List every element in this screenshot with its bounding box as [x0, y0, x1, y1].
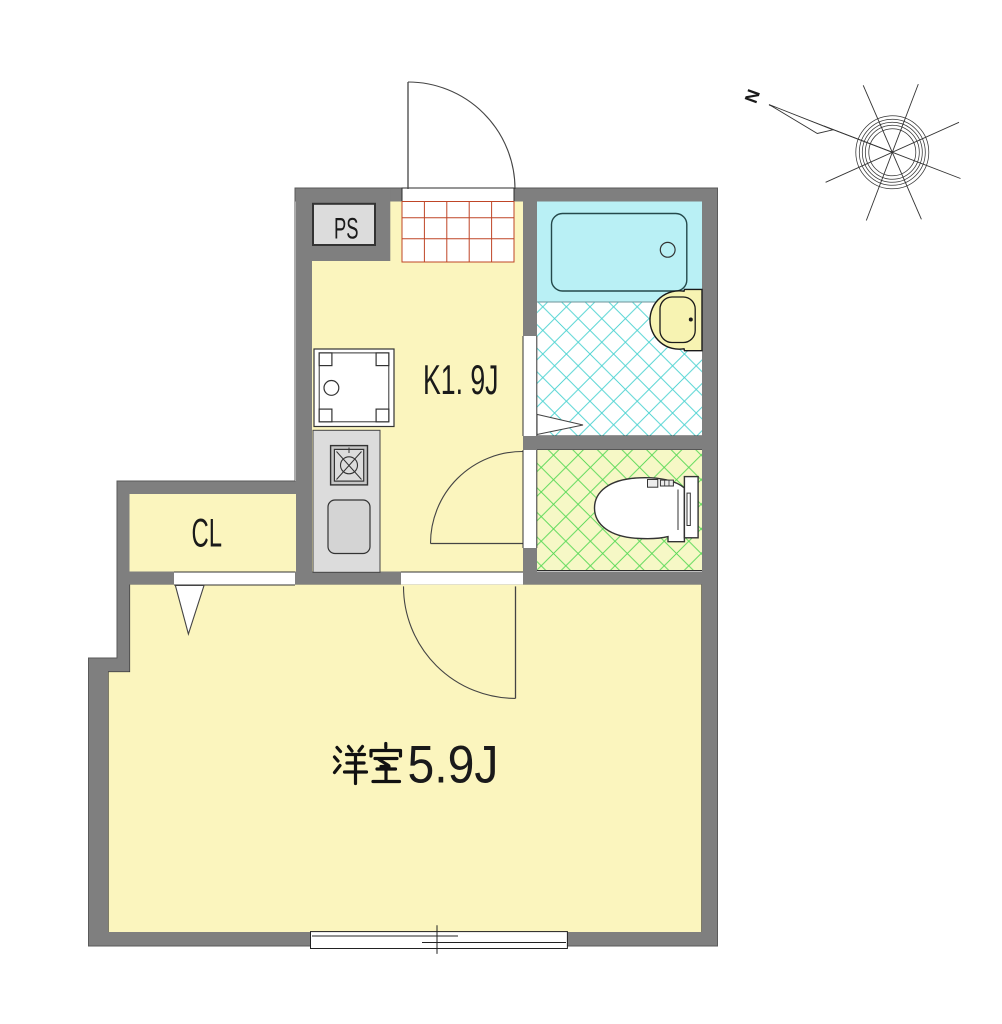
svg-text:5.9J: 5.9J	[408, 736, 499, 795]
svg-text:CL: CL	[192, 512, 223, 556]
svg-text:PS: PS	[334, 213, 359, 246]
svg-text:K1. 9J: K1. 9J	[423, 356, 499, 403]
